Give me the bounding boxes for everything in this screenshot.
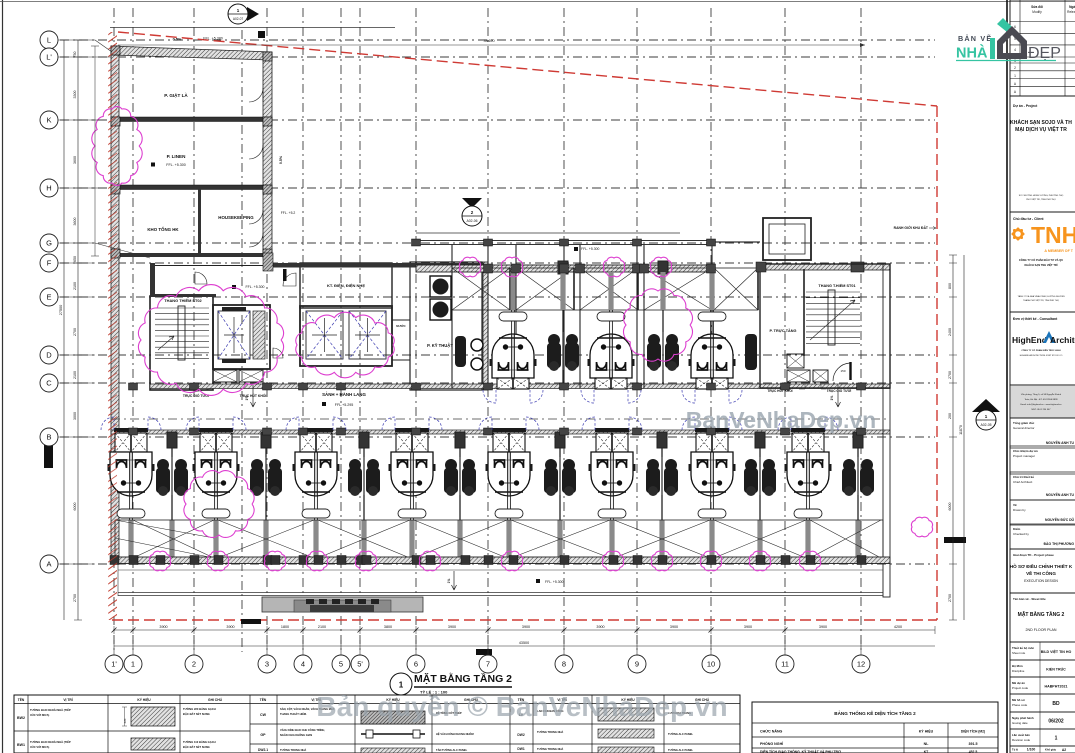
svg-text:SẢNH + HÀNH LANG: SẢNH + HÀNH LANG	[322, 392, 366, 397]
svg-text:3900: 3900	[596, 625, 604, 629]
svg-text:MẠI DỊCH VỤ VIỆT TR: MẠI DỊCH VỤ VIỆT TR	[1015, 125, 1067, 133]
svg-text:THÀNH PHỐ VIỆT TRÌ, TỈNH PHÚ T: THÀNH PHỐ VIỆT TRÌ, TỈNH PHÚ THỌ	[1023, 299, 1059, 302]
svg-text:KIẾN TRÚC: KIẾN TRÚC	[1046, 667, 1066, 672]
svg-text:Dự án - Project: Dự án - Project	[1013, 104, 1038, 108]
svg-text:Toàn, Hà Nội - ĐT: 024 3556 88: Toàn, Hà Nội - ĐT: 024 3556 8899	[1024, 399, 1058, 401]
svg-text:FFL. +5.300: FFL. +5.300	[581, 247, 599, 251]
svg-text:BW1: BW1	[17, 743, 25, 747]
svg-text:800: 800	[948, 283, 952, 289]
svg-text:NGUYỄN ANH TU: NGUYỄN ANH TU	[1046, 492, 1075, 497]
svg-text:3800: 3800	[384, 625, 392, 629]
svg-text:39400: 39400	[483, 38, 495, 43]
svg-text:Revision code: Revision code	[1012, 738, 1031, 742]
svg-text:DIỆN TÍCH (M2): DIỆN TÍCH (M2)	[961, 729, 985, 734]
svg-text:P. KỸ THUẬT: P. KỸ THUẬT	[427, 343, 453, 348]
svg-text:150: 150	[840, 369, 845, 373]
svg-text:11: 11	[781, 660, 789, 669]
svg-text:A MEMBER OF T: A MEMBER OF T	[1044, 249, 1073, 253]
svg-text:THANG T.HIỂM ST01: THANG T.HIỂM ST01	[818, 283, 855, 288]
svg-text:43500: 43500	[519, 641, 529, 645]
svg-text:2ND FLOOR PLAN: 2ND FLOOR PLAN	[1026, 628, 1057, 632]
svg-text:Khổ giấy: Khổ giấy	[1045, 748, 1057, 752]
svg-text:4: 4	[301, 660, 305, 669]
svg-text:Chủ nhiệm dự án: Chủ nhiệm dự án	[1013, 449, 1038, 453]
svg-text:Architec: Architec	[1050, 335, 1075, 345]
svg-text:BẢNG THỐNG KÊ DIỆN TÍCH TẦNG 2: BẢNG THỐNG KÊ DIỆN TÍCH TẦNG 2	[834, 709, 916, 716]
svg-text:MST: 0101 234 567: MST: 0101 234 567	[1032, 409, 1052, 411]
svg-text:2700: 2700	[948, 594, 952, 602]
svg-text:Issuing date: Issuing date	[1012, 721, 1028, 725]
svg-text:ĐẸP: ĐẸP	[1028, 45, 1061, 62]
svg-text:Checked by: Checked by	[1013, 532, 1029, 536]
svg-text:3300: 3300	[73, 91, 77, 99]
svg-text:3900: 3900	[670, 625, 678, 629]
svg-text:FFL. +5.300: FFL. +5.300	[246, 285, 265, 289]
svg-text:BILD VIỆT TIN HO: BILD VIỆT TIN HO	[1041, 649, 1072, 654]
svg-text:HỒ SƠ ĐIỀU CHỈNH THIẾT K: HỒ SƠ ĐIỀU CHỈNH THIẾT K	[1010, 563, 1073, 569]
svg-text:TÊN: TÊN	[260, 697, 267, 702]
svg-text:1%: 1%	[245, 396, 249, 401]
svg-text:5: 5	[339, 660, 343, 669]
svg-text:Email: info@highend.vn - www.h: Email: info@highend.vn - www.highend.vn	[1020, 404, 1062, 406]
svg-text:FFL.+5.295: FFL.+5.295	[335, 403, 353, 407]
svg-text:EXECUTION DESIGN: EXECUTION DESIGN	[1024, 579, 1058, 583]
svg-text:TRỤC GIÓ TƯƠI: TRỤC GIÓ TƯƠI	[183, 393, 209, 398]
svg-text:1': 1'	[111, 660, 117, 669]
svg-text:P. LINEN: P. LINEN	[167, 154, 186, 159]
svg-text:Bản quyền © BanVeNhaDep.vn: Bản quyền © BanVeNhaDep.vn	[316, 691, 727, 722]
svg-text:MẶT BẰNG TẦNG 2: MẶT BẰNG TẦNG 2	[1018, 610, 1065, 618]
svg-text:1: 1	[399, 681, 404, 690]
svg-text:3000: 3000	[73, 412, 77, 420]
svg-text:5': 5'	[357, 660, 363, 669]
svg-text:KT. ĐIỆN, ĐIỆN NHẸ: KT. ĐIỆN, ĐIỆN NHẸ	[327, 283, 365, 288]
svg-text:VỀ THI CÔNG: VỀ THI CÔNG	[1026, 569, 1056, 576]
svg-text:6: 6	[1014, 25, 1016, 29]
svg-text:CHỨC NĂNG: CHỨC NĂNG	[760, 729, 783, 734]
svg-text:FFL. +5.300: FFL. +5.300	[166, 163, 185, 167]
svg-text:0.5%: 0.5%	[279, 155, 283, 164]
svg-text:2100: 2100	[318, 625, 326, 629]
svg-text:Mã hồ sơ: Mã hồ sơ	[1012, 698, 1026, 702]
svg-text:4200: 4200	[894, 625, 902, 629]
svg-text:P. TRỰC TẦNG: P. TRỰC TẦNG	[770, 329, 797, 333]
svg-text:Ngày phát hành: Ngày phát hành	[1012, 716, 1034, 720]
svg-text:GHI CHÚ: GHI CHÚ	[208, 697, 223, 702]
svg-text:Discipline: Discipline	[1012, 669, 1025, 673]
svg-text:CÔNG TY CỔ PHẦN KIẾN TRÚC HIGH: CÔNG TY CỔ PHẦN KIẾN TRÚC HIGH	[1021, 349, 1061, 352]
svg-text:3: 3	[265, 660, 269, 669]
svg-text:2700: 2700	[73, 328, 77, 336]
svg-text:L': L'	[46, 53, 52, 62]
svg-text:FFL. +5.300: FFL. +5.300	[545, 580, 563, 584]
svg-text:G: G	[46, 239, 52, 248]
svg-text:1%: 1%	[447, 579, 451, 584]
svg-text:TNH: TNH	[1031, 222, 1075, 248]
svg-text:3900: 3900	[744, 625, 752, 629]
svg-text:C: C	[46, 379, 52, 388]
svg-text:NGUYỄN ĐỨC DŨ: NGUYỄN ĐỨC DŨ	[1045, 517, 1075, 522]
svg-text:1: 1	[1055, 736, 1058, 742]
svg-text:NL: NL	[924, 742, 930, 746]
svg-text:Chief Architect: Chief Architect	[1013, 480, 1033, 484]
svg-text:1/100: 1/100	[1027, 748, 1036, 752]
svg-text:Sheet role: Sheet role	[1012, 651, 1026, 655]
svg-text:L: L	[47, 36, 51, 45]
svg-text:BanVeNhaDep.vn: BanVeNhaDep.vn	[686, 407, 876, 433]
svg-text:FFL. +5.2: FFL. +5.2	[281, 211, 296, 215]
svg-text:DW1: DW1	[517, 747, 524, 751]
svg-text:3900: 3900	[448, 625, 456, 629]
svg-text:KÝ HIỆU: KÝ HIỆU	[919, 729, 934, 734]
svg-text:27500: 27500	[59, 305, 63, 316]
svg-text:RANH GIỚI KHU ĐẤT: RANH GIỚI KHU ĐẤT	[894, 225, 929, 230]
svg-text:A02-05: A02-05	[981, 423, 992, 427]
svg-text:A: A	[46, 560, 51, 569]
svg-text:Chủ trì thiết kế: Chủ trì thiết kế	[1013, 475, 1034, 479]
svg-text:B: B	[46, 433, 51, 442]
svg-text:Phase code: Phase code	[1012, 703, 1028, 707]
svg-text:750: 750	[73, 52, 77, 58]
svg-text:3900: 3900	[159, 625, 167, 629]
svg-text:200: 200	[948, 413, 952, 419]
svg-text:Release: Release	[1067, 10, 1075, 14]
svg-text:E: E	[46, 293, 51, 302]
svg-text:HIGHEND ARCHITECTURE JOINT STO: HIGHEND ARCHITECTURE JOINT STOCK CO	[1020, 354, 1063, 357]
svg-text:Sửa đổi: Sửa đổi	[1031, 5, 1043, 9]
svg-text:Đơn vị thiết kế - Consultant: Đơn vị thiết kế - Consultant	[1013, 317, 1058, 321]
svg-text:FFL. +5.380: FFL. +5.380	[203, 37, 222, 41]
svg-text:1: 1	[131, 660, 135, 669]
svg-text:Tỷ lệ: Tỷ lệ	[1012, 748, 1018, 752]
svg-text:General director: General director	[1013, 426, 1035, 430]
svg-text:3600: 3600	[73, 156, 77, 164]
svg-text:DIỆN TÍCH GIAO THÔNG, KỸ THUẬT: DIỆN TÍCH GIAO THÔNG, KỸ THUẬT VÀ PHỤ TR…	[760, 749, 841, 753]
svg-text:2700: 2700	[73, 594, 77, 602]
svg-text:650: 650	[73, 256, 77, 262]
svg-text:Giai đoạn TK - Project phase: Giai đoạn TK - Project phase	[1013, 553, 1054, 557]
svg-text:H: H	[46, 184, 51, 193]
svg-text:3900: 3900	[522, 625, 530, 629]
svg-text:P. GIẶT LÀ: P. GIẶT LÀ	[164, 92, 188, 98]
svg-text:9: 9	[635, 660, 639, 669]
svg-text:Tên bản vẽ - Sheet title: Tên bản vẽ - Sheet title	[1013, 597, 1046, 601]
svg-text:DW2.1: DW2.1	[258, 748, 268, 752]
svg-text:220: 220	[123, 718, 127, 723]
svg-text:2100: 2100	[73, 371, 77, 379]
svg-text:PHÒNG NGHỈ: PHÒNG NGHỈ	[760, 741, 783, 746]
svg-text:Vẽ: Vẽ	[1013, 503, 1017, 507]
svg-text:8: 8	[562, 660, 566, 669]
svg-text:Kiểm: Kiểm	[1013, 527, 1021, 531]
svg-text:MẶT BẰNG TẦNG 2: MẶT BẰNG TẦNG 2	[414, 672, 512, 685]
svg-text:3900: 3900	[226, 625, 234, 629]
svg-text:1800: 1800	[281, 625, 289, 629]
svg-text:Modify: Modify	[1032, 10, 1042, 14]
svg-text:KHO TỔNG HK: KHO TỔNG HK	[147, 227, 179, 232]
svg-text:HighEnd: HighEnd	[1012, 335, 1047, 345]
svg-text:2: 2	[192, 660, 196, 669]
svg-text:11870: 11870	[959, 425, 963, 435]
svg-text:ĐÀO THỊ PHƯƠNG: ĐÀO THỊ PHƯƠNG	[1044, 541, 1075, 546]
svg-text:SỐ 2 ĐƯỜNG HÙNG VƯƠNG, PHƯỜNG: SỐ 2 ĐƯỜNG HÙNG VƯƠNG, PHƯỜNG THỌ	[1019, 194, 1064, 197]
svg-text:K: K	[46, 116, 51, 125]
svg-text:2400: 2400	[948, 328, 952, 336]
svg-text:D: D	[46, 351, 52, 360]
svg-text:Drawn by: Drawn by	[1013, 508, 1026, 512]
svg-text:06/202: 06/202	[1048, 719, 1064, 725]
svg-text:Văn phòng: Tầng 5, số 58 Nguyễ: Văn phòng: Tầng 5, số 58 Nguyễn Khánh	[1021, 393, 1062, 396]
svg-text:BẢN VẼ: BẢN VẼ	[958, 34, 992, 43]
svg-text:2: 2	[1014, 66, 1016, 70]
svg-text:3600: 3600	[73, 218, 77, 226]
svg-text:12: 12	[857, 660, 865, 669]
svg-text:BD: BD	[1052, 701, 1060, 707]
svg-text:Thiết kế bộ môn: Thiết kế bộ môn	[1012, 646, 1034, 650]
svg-text:Ngày: Ngày	[1069, 5, 1075, 9]
svg-text:THANG THIÊM ST02: THANG THIÊM ST02	[164, 298, 202, 303]
svg-text:Bộ Môn: Bộ Môn	[1012, 664, 1023, 668]
svg-text:TẦNG 2 TOÀ NHÀ VINACONEX, ĐƯỜN: TẦNG 2 TOÀ NHÀ VINACONEX, ĐƯỜNG NGUYỄN	[1017, 295, 1065, 298]
svg-text:6000: 6000	[948, 503, 952, 511]
svg-text:NGUYỄN ANH TU: NGUYỄN ANH TU	[1046, 440, 1075, 445]
svg-text:KÝ HIỆU: KÝ HIỆU	[137, 697, 151, 702]
svg-text:3900: 3900	[819, 625, 827, 629]
svg-text:0.5%: 0.5%	[173, 38, 182, 42]
svg-text:6: 6	[414, 660, 418, 669]
svg-text:A02-07: A02-07	[233, 17, 244, 21]
svg-text:TÊN: TÊN	[18, 697, 25, 702]
svg-text:VỊ TRÍ: VỊ TRÍ	[63, 697, 72, 702]
svg-text:4: 4	[1014, 48, 1016, 52]
svg-text:Tổng giám đốc: Tổng giám đốc	[1013, 421, 1035, 425]
svg-text:1%: 1%	[830, 396, 834, 401]
svg-text:PHỐ VIỆT TRÌ, TỈNH PHÚ THỌ: PHỐ VIỆT TRÌ, TỈNH PHÚ THỌ	[1026, 198, 1056, 201]
svg-text:Mã dự án: Mã dự án	[1012, 681, 1025, 685]
svg-text:2700: 2700	[948, 371, 952, 379]
svg-text:1: 1	[1014, 74, 1016, 78]
svg-text:KHÁCH SẠN SOJO VÀ TH: KHÁCH SẠN SOJO VÀ TH	[1010, 119, 1072, 126]
svg-text:Lần xuất bản: Lần xuất bản	[1012, 733, 1030, 737]
svg-text:HOUSEKEEPING: HOUSEKEEPING	[218, 215, 254, 220]
svg-text:6000: 6000	[73, 503, 77, 511]
svg-text:HABPHT2021: HABPHT2021	[1045, 685, 1068, 689]
svg-text:Project code: Project code	[1012, 686, 1028, 690]
svg-text:10: 10	[707, 660, 715, 669]
svg-text:BW2: BW2	[17, 716, 25, 720]
svg-text:7: 7	[486, 660, 490, 669]
svg-text:CW: CW	[260, 713, 267, 717]
svg-text:Chủ đầu tư - Client: Chủ đầu tư - Client	[1013, 217, 1044, 221]
svg-text:NƯỚC: NƯỚC	[396, 323, 406, 328]
svg-text:F: F	[47, 259, 52, 268]
svg-text:Project manager: Project manager	[1013, 454, 1035, 458]
svg-text:2100: 2100	[73, 282, 77, 290]
svg-text:A02-06: A02-06	[467, 219, 478, 223]
svg-text:391.5: 391.5	[969, 742, 978, 746]
svg-text:DW2: DW2	[517, 733, 524, 737]
svg-text:NHÀ: NHÀ	[956, 45, 988, 62]
svg-text:TRỤC GIÓ TƯƠI: TRỤC GIÓ TƯƠI	[827, 388, 852, 393]
svg-text:A2: A2	[1062, 748, 1066, 752]
svg-text:GP: GP	[260, 733, 266, 737]
